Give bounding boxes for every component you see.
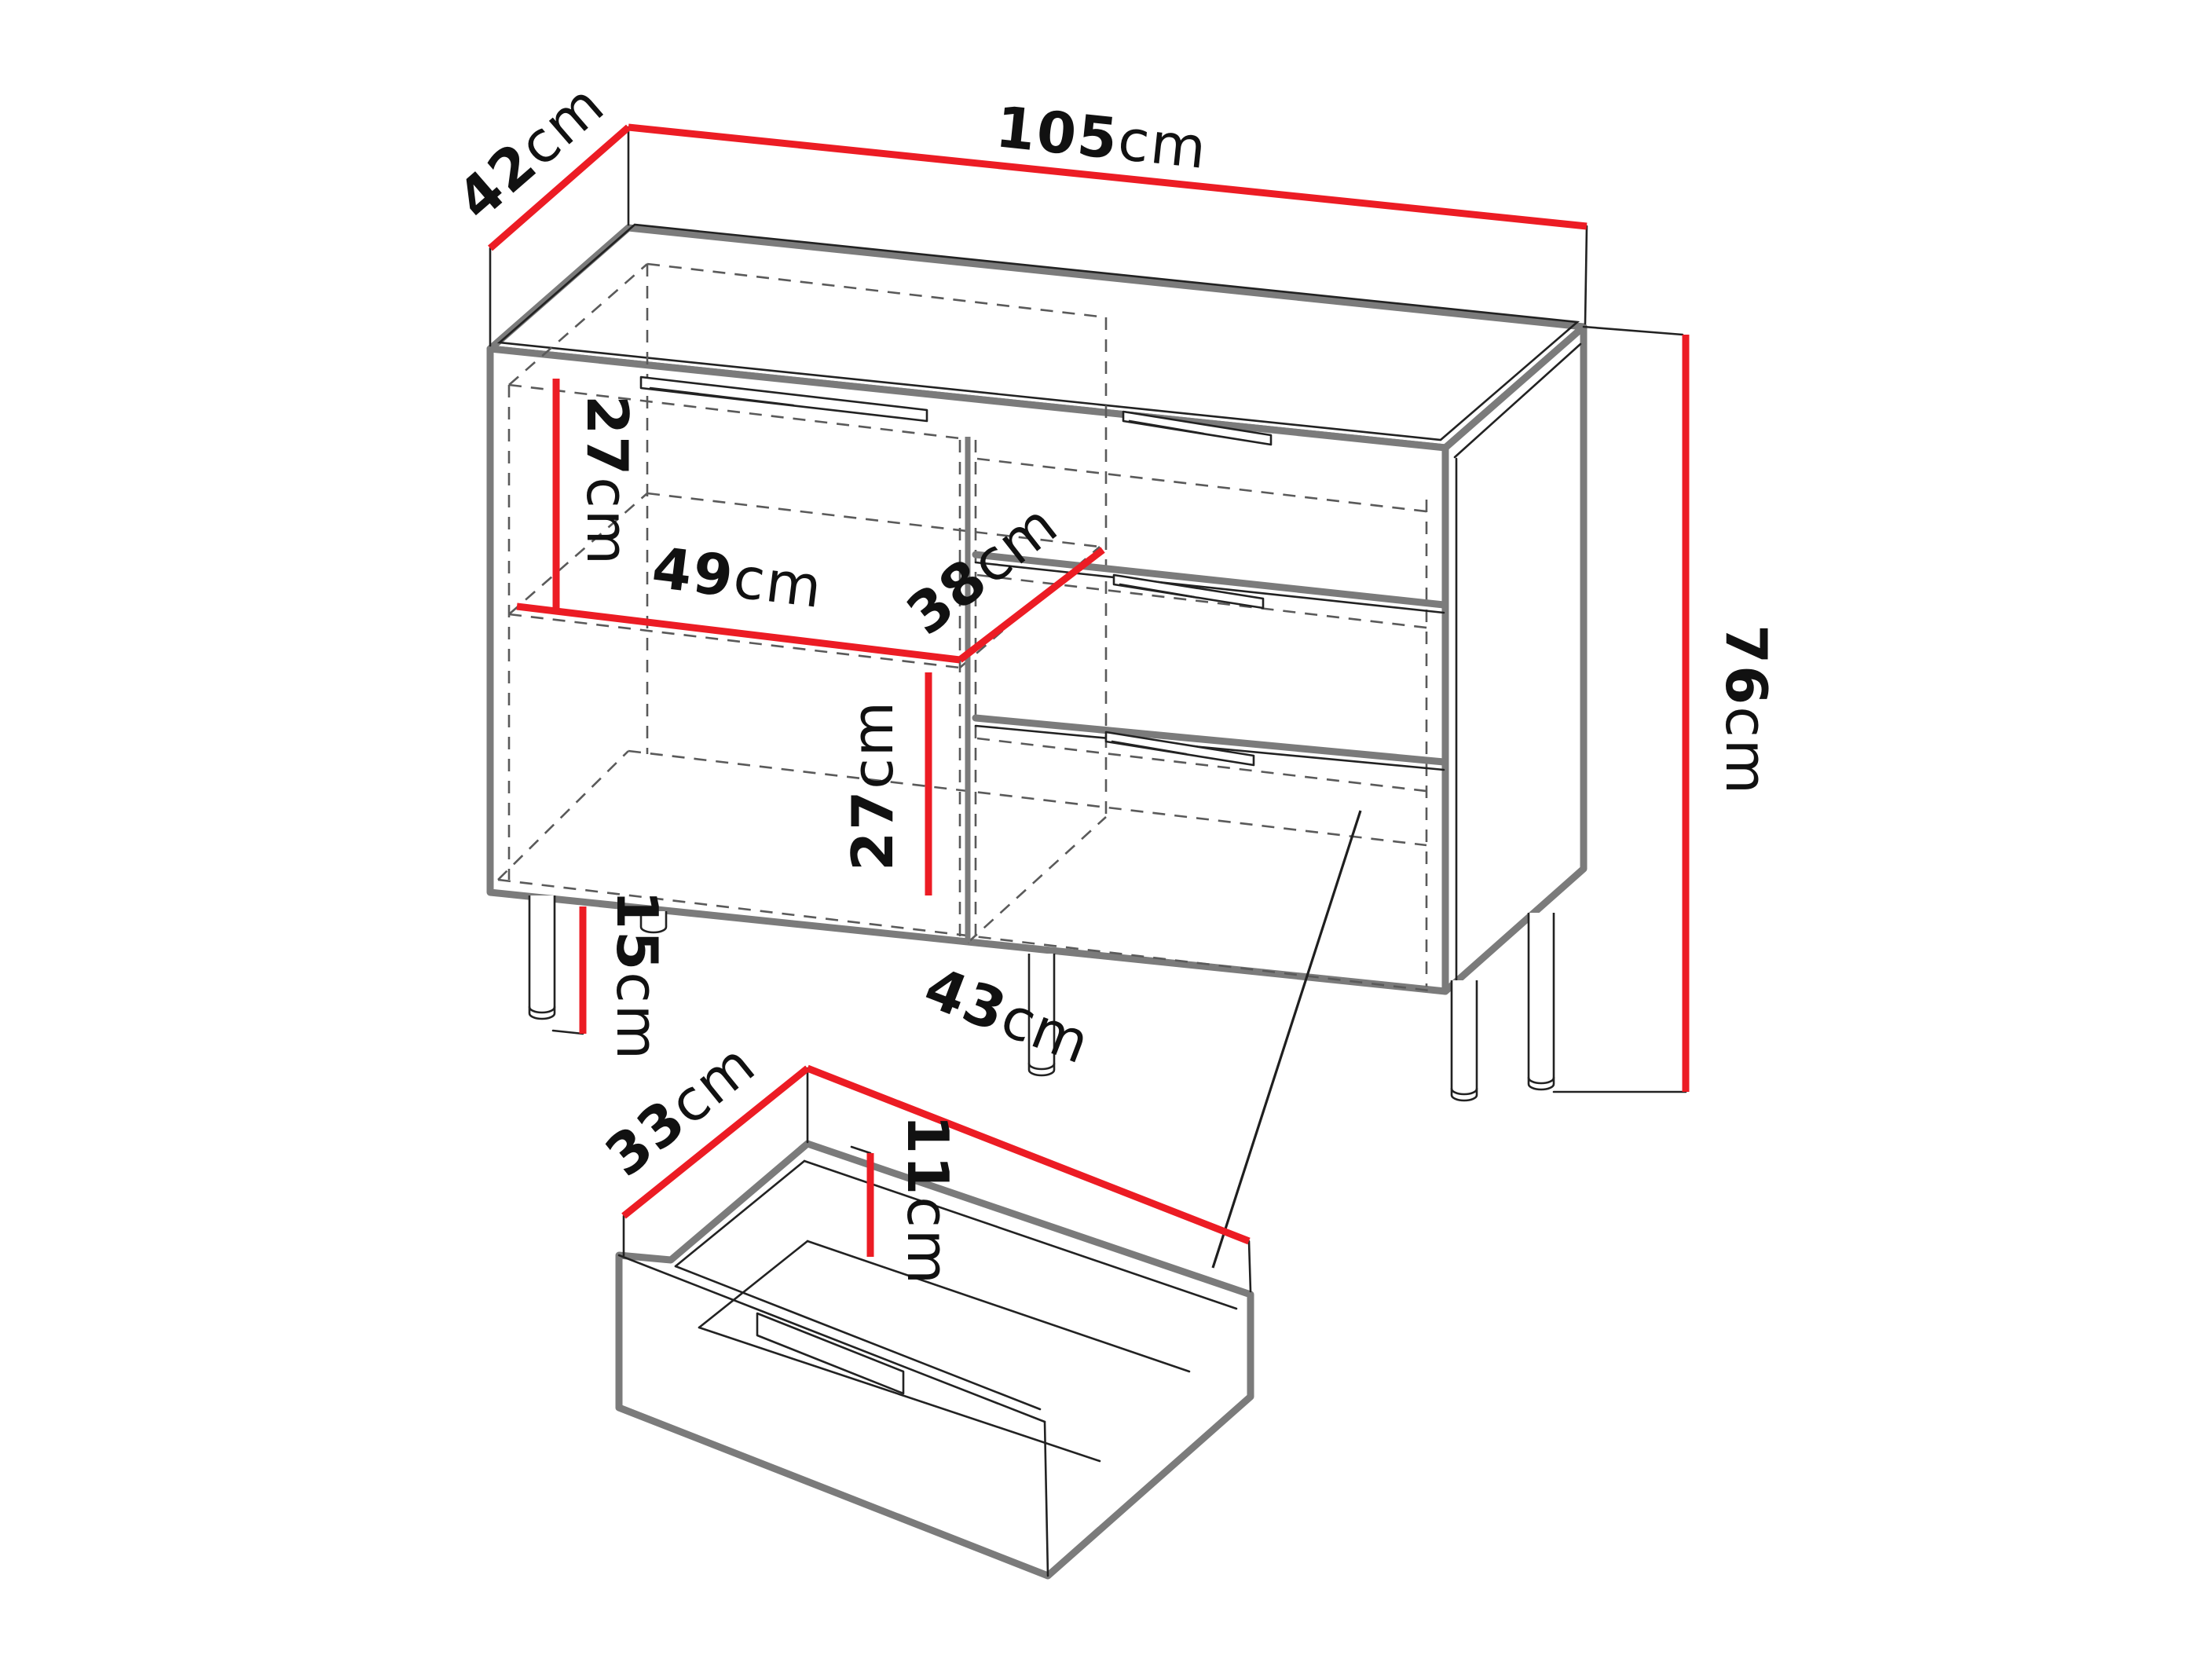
dim-label-drawer-width-43cm: 43cm [916, 954, 1100, 1077]
furniture-dimension-diagram: 105cm 42cm 76cm 27cm 49cm 38cm 27cm 15cm… [0, 0, 2212, 1659]
ext-43-right [1249, 1241, 1251, 1291]
dim-label-upper-inner-27cm: 27cm [574, 395, 640, 566]
ext-11-top [851, 1147, 870, 1153]
dim-label-lower-inner-27cm: 27cm [840, 700, 906, 871]
dimension-diagram-page: 105cm 42cm 76cm 27cm 49cm 38cm 27cm 15cm… [0, 0, 2212, 1659]
leg-front-left [529, 895, 555, 1019]
dim-label-drawer-height-11cm: 11cm [895, 1115, 961, 1286]
dim-label-height-76cm: 76cm [1713, 624, 1779, 796]
ext-15-bottom [553, 1031, 583, 1034]
dim-label-leg-15cm: 15cm [604, 890, 670, 1061]
ext-76-top [1584, 327, 1683, 335]
ext-105-right [1585, 226, 1587, 324]
leg-front-right [1452, 980, 1477, 1101]
leg-back-right [1529, 913, 1554, 1090]
cabinet-right-face [1445, 327, 1584, 991]
